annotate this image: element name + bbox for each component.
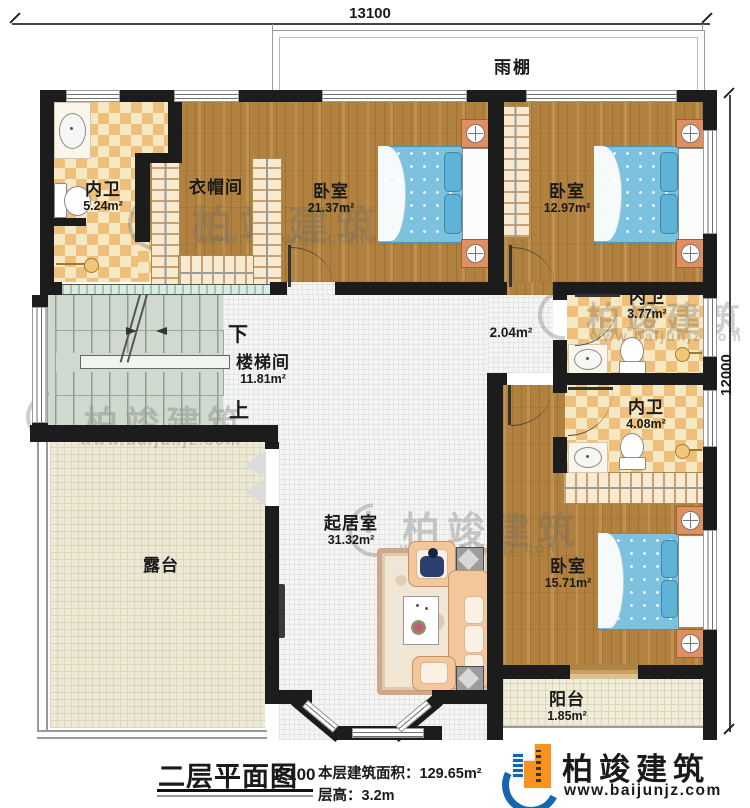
legend-floor-height: 层高：3.2m bbox=[318, 784, 395, 805]
balcony-door-threshold bbox=[570, 665, 638, 679]
legend-underline bbox=[157, 789, 313, 792]
wall-segment bbox=[703, 630, 717, 740]
armchair-cushion bbox=[420, 662, 448, 684]
wall-segment bbox=[703, 234, 717, 298]
wall-segment bbox=[703, 357, 717, 390]
double-door-leaf bbox=[245, 451, 266, 479]
dimension-tick bbox=[701, 12, 712, 23]
legend-scale: 1:100 bbox=[272, 765, 315, 785]
window bbox=[66, 90, 120, 102]
room-label-cloakroom: 衣帽间 bbox=[189, 178, 243, 197]
wall-segment bbox=[120, 90, 174, 102]
terrace-parapet bbox=[46, 442, 48, 732]
wall-segment bbox=[32, 295, 48, 307]
dimension-tick bbox=[9, 12, 20, 23]
window bbox=[322, 90, 467, 102]
bed-headboard bbox=[678, 535, 705, 628]
window bbox=[32, 307, 48, 423]
wall-segment bbox=[487, 373, 507, 385]
person-icon bbox=[420, 556, 444, 577]
stair-arrow-icon bbox=[156, 327, 167, 335]
brand-logo-swoosh bbox=[494, 748, 567, 808]
room-label-stairwell: 楼梯间 11.81m² bbox=[236, 353, 290, 386]
brand-website: www.baijunjz.com bbox=[564, 782, 722, 800]
side-table-top bbox=[458, 549, 479, 570]
double-door-leaf bbox=[245, 478, 266, 506]
wall-segment bbox=[54, 218, 86, 226]
nightstand-icon bbox=[461, 239, 490, 268]
wall-segment bbox=[553, 373, 703, 385]
floor-terrace bbox=[50, 442, 265, 728]
closet-bedroom3 bbox=[563, 472, 704, 504]
stair-rail bbox=[80, 355, 230, 369]
room-label-balcony: 阳台 1.85m² bbox=[547, 690, 587, 723]
room-label-bath-right1: 内卫 3.77m² bbox=[627, 288, 667, 321]
legend-floor-area: 本层建筑面积：129.65m² bbox=[318, 762, 482, 783]
table-decor-dot bbox=[416, 604, 419, 607]
balcony-parapet bbox=[503, 726, 717, 728]
wall-segment bbox=[553, 295, 567, 300]
floor-drain-stem bbox=[56, 263, 85, 265]
wall-segment bbox=[335, 282, 507, 295]
side-table-top bbox=[458, 668, 479, 689]
wall-segment bbox=[40, 90, 54, 295]
shower-icon bbox=[675, 347, 690, 362]
canopy-outline-inner bbox=[279, 37, 698, 93]
faucet-dot bbox=[586, 357, 589, 360]
wall-segment bbox=[487, 665, 570, 679]
window bbox=[174, 90, 239, 102]
window bbox=[703, 390, 717, 447]
brand-logo bbox=[500, 738, 560, 806]
room-label-living: 起居室 31.32m² bbox=[324, 514, 378, 547]
room-label-bath-topleft: 内卫 5.24m² bbox=[83, 180, 123, 213]
wall-segment bbox=[270, 282, 287, 295]
room-label-hall: 2.04m² bbox=[490, 325, 533, 340]
stair-down-label: 下 bbox=[228, 318, 248, 347]
canopy-guide bbox=[272, 24, 273, 30]
faucet-dot bbox=[586, 455, 589, 458]
floor-area-value: 129.65m² bbox=[420, 766, 482, 782]
wall-segment bbox=[488, 102, 504, 282]
room-label-terrace: 露台 bbox=[143, 556, 179, 575]
nightstand-icon bbox=[676, 506, 705, 535]
room-label-bedroom2: 卧室 12.97m² bbox=[544, 182, 591, 215]
nightstand-icon bbox=[676, 119, 705, 148]
closet-cloakroom-right bbox=[252, 158, 282, 291]
shower-stem bbox=[688, 352, 702, 354]
stair-arrow-icon bbox=[126, 327, 137, 335]
pillow-icon bbox=[660, 194, 678, 234]
nightstand-icon bbox=[676, 239, 705, 268]
table-decor-dot bbox=[425, 607, 428, 610]
wall-segment bbox=[239, 90, 322, 102]
terrace-parapet bbox=[37, 730, 267, 732]
flower-icon bbox=[411, 620, 426, 635]
window bbox=[703, 298, 717, 357]
terrace-parapet bbox=[37, 442, 39, 732]
stair-up-label: 上 bbox=[229, 394, 249, 423]
wall-segment bbox=[265, 506, 279, 697]
nightstand-icon bbox=[676, 629, 705, 658]
window bbox=[703, 530, 717, 630]
floor-drain-icon bbox=[84, 258, 99, 273]
dimension-line-right bbox=[729, 95, 731, 732]
window bbox=[526, 90, 677, 102]
wall-segment bbox=[168, 102, 182, 160]
watermark-url: www.baijunjz.com bbox=[590, 328, 743, 344]
room-label-bedroom1: 卧室 21.37m² bbox=[308, 182, 355, 215]
lamp-icon bbox=[681, 244, 700, 263]
floor-height-value: 3.2m bbox=[362, 788, 395, 804]
lamp-icon bbox=[466, 124, 485, 143]
canopy-guide bbox=[702, 24, 703, 30]
wall-segment bbox=[467, 90, 526, 102]
pillow-icon bbox=[661, 580, 678, 618]
dimension-label-top: 13100 bbox=[340, 5, 400, 22]
floor-height-label: 层高： bbox=[318, 788, 362, 804]
legend-underline bbox=[157, 795, 313, 797]
toilet-icon bbox=[619, 457, 646, 470]
wall-segment bbox=[40, 282, 62, 295]
room-label-bedroom3: 卧室 15.71m² bbox=[545, 557, 592, 590]
person-icon bbox=[428, 548, 438, 558]
lamp-icon bbox=[681, 634, 700, 653]
wall-segment bbox=[703, 447, 717, 530]
faucet-dot bbox=[70, 127, 73, 130]
wall-segment bbox=[135, 160, 150, 242]
lamp-icon bbox=[681, 511, 700, 530]
sofa-cushion bbox=[464, 596, 484, 624]
lamp-icon bbox=[681, 124, 700, 143]
wall-segment bbox=[703, 90, 717, 130]
canopy-label: 雨棚 bbox=[494, 53, 532, 78]
sink-icon bbox=[59, 113, 86, 149]
floor-plan: 13100 12000 雨棚 柏竣建筑 www.baijunjz.com 柏竣建… bbox=[0, 0, 750, 808]
bed-headboard bbox=[678, 148, 705, 240]
dimension-line-top bbox=[12, 23, 710, 25]
window bbox=[352, 728, 424, 738]
pillow-icon bbox=[660, 152, 678, 192]
room-label-bath-right2: 内卫 4.08m² bbox=[626, 398, 666, 431]
wall-segment bbox=[553, 385, 567, 393]
lamp-icon bbox=[466, 244, 485, 263]
shower-stem bbox=[688, 449, 702, 451]
closet-cloakroom-left bbox=[151, 158, 180, 291]
bed-headboard bbox=[462, 148, 490, 240]
sofa-cushion bbox=[464, 625, 484, 653]
window bbox=[703, 130, 717, 234]
window-high bbox=[62, 284, 270, 295]
wall-segment bbox=[265, 442, 279, 449]
pillow-icon bbox=[661, 540, 678, 578]
nightstand-icon bbox=[461, 119, 490, 148]
pillow-icon bbox=[444, 194, 462, 234]
wall-segment bbox=[553, 437, 567, 473]
terrace-parapet bbox=[37, 737, 267, 739]
floor-balcony bbox=[503, 679, 703, 726]
wall-segment bbox=[30, 425, 278, 442]
floor-area-label: 本层建筑面积： bbox=[318, 766, 420, 782]
closet-bedroom2 bbox=[501, 106, 530, 238]
dimension-label-right: 12000 bbox=[718, 349, 734, 401]
pillow-icon bbox=[444, 152, 462, 192]
shower-icon bbox=[675, 444, 690, 459]
wall-segment bbox=[487, 385, 503, 740]
